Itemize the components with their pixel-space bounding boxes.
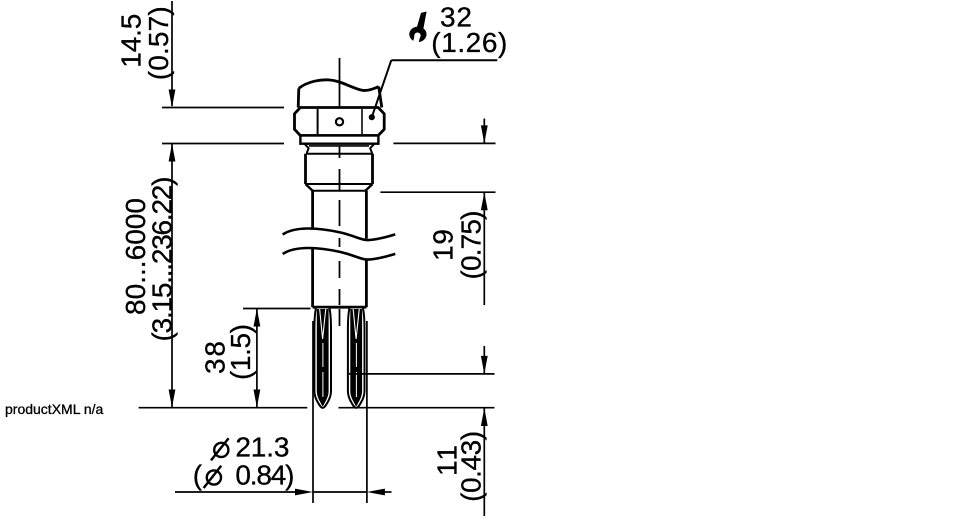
svg-text:(0.57): (0.57)	[143, 6, 174, 80]
svg-text:19: 19	[428, 229, 459, 261]
svg-text:(0.75): (0.75)	[456, 211, 487, 280]
svg-text:(0.43): (0.43)	[456, 431, 487, 502]
svg-text:(: (	[193, 459, 203, 490]
svg-text:(3.15...236.22): (3.15...236.22)	[147, 177, 178, 342]
svg-text:(1.5): (1.5)	[225, 324, 256, 380]
svg-text:0.84): 0.84)	[235, 459, 294, 490]
svg-text:21.3: 21.3	[235, 431, 289, 462]
svg-text:productXML n/a: productXML n/a	[5, 401, 104, 417]
svg-text:(1.26): (1.26)	[431, 27, 507, 58]
